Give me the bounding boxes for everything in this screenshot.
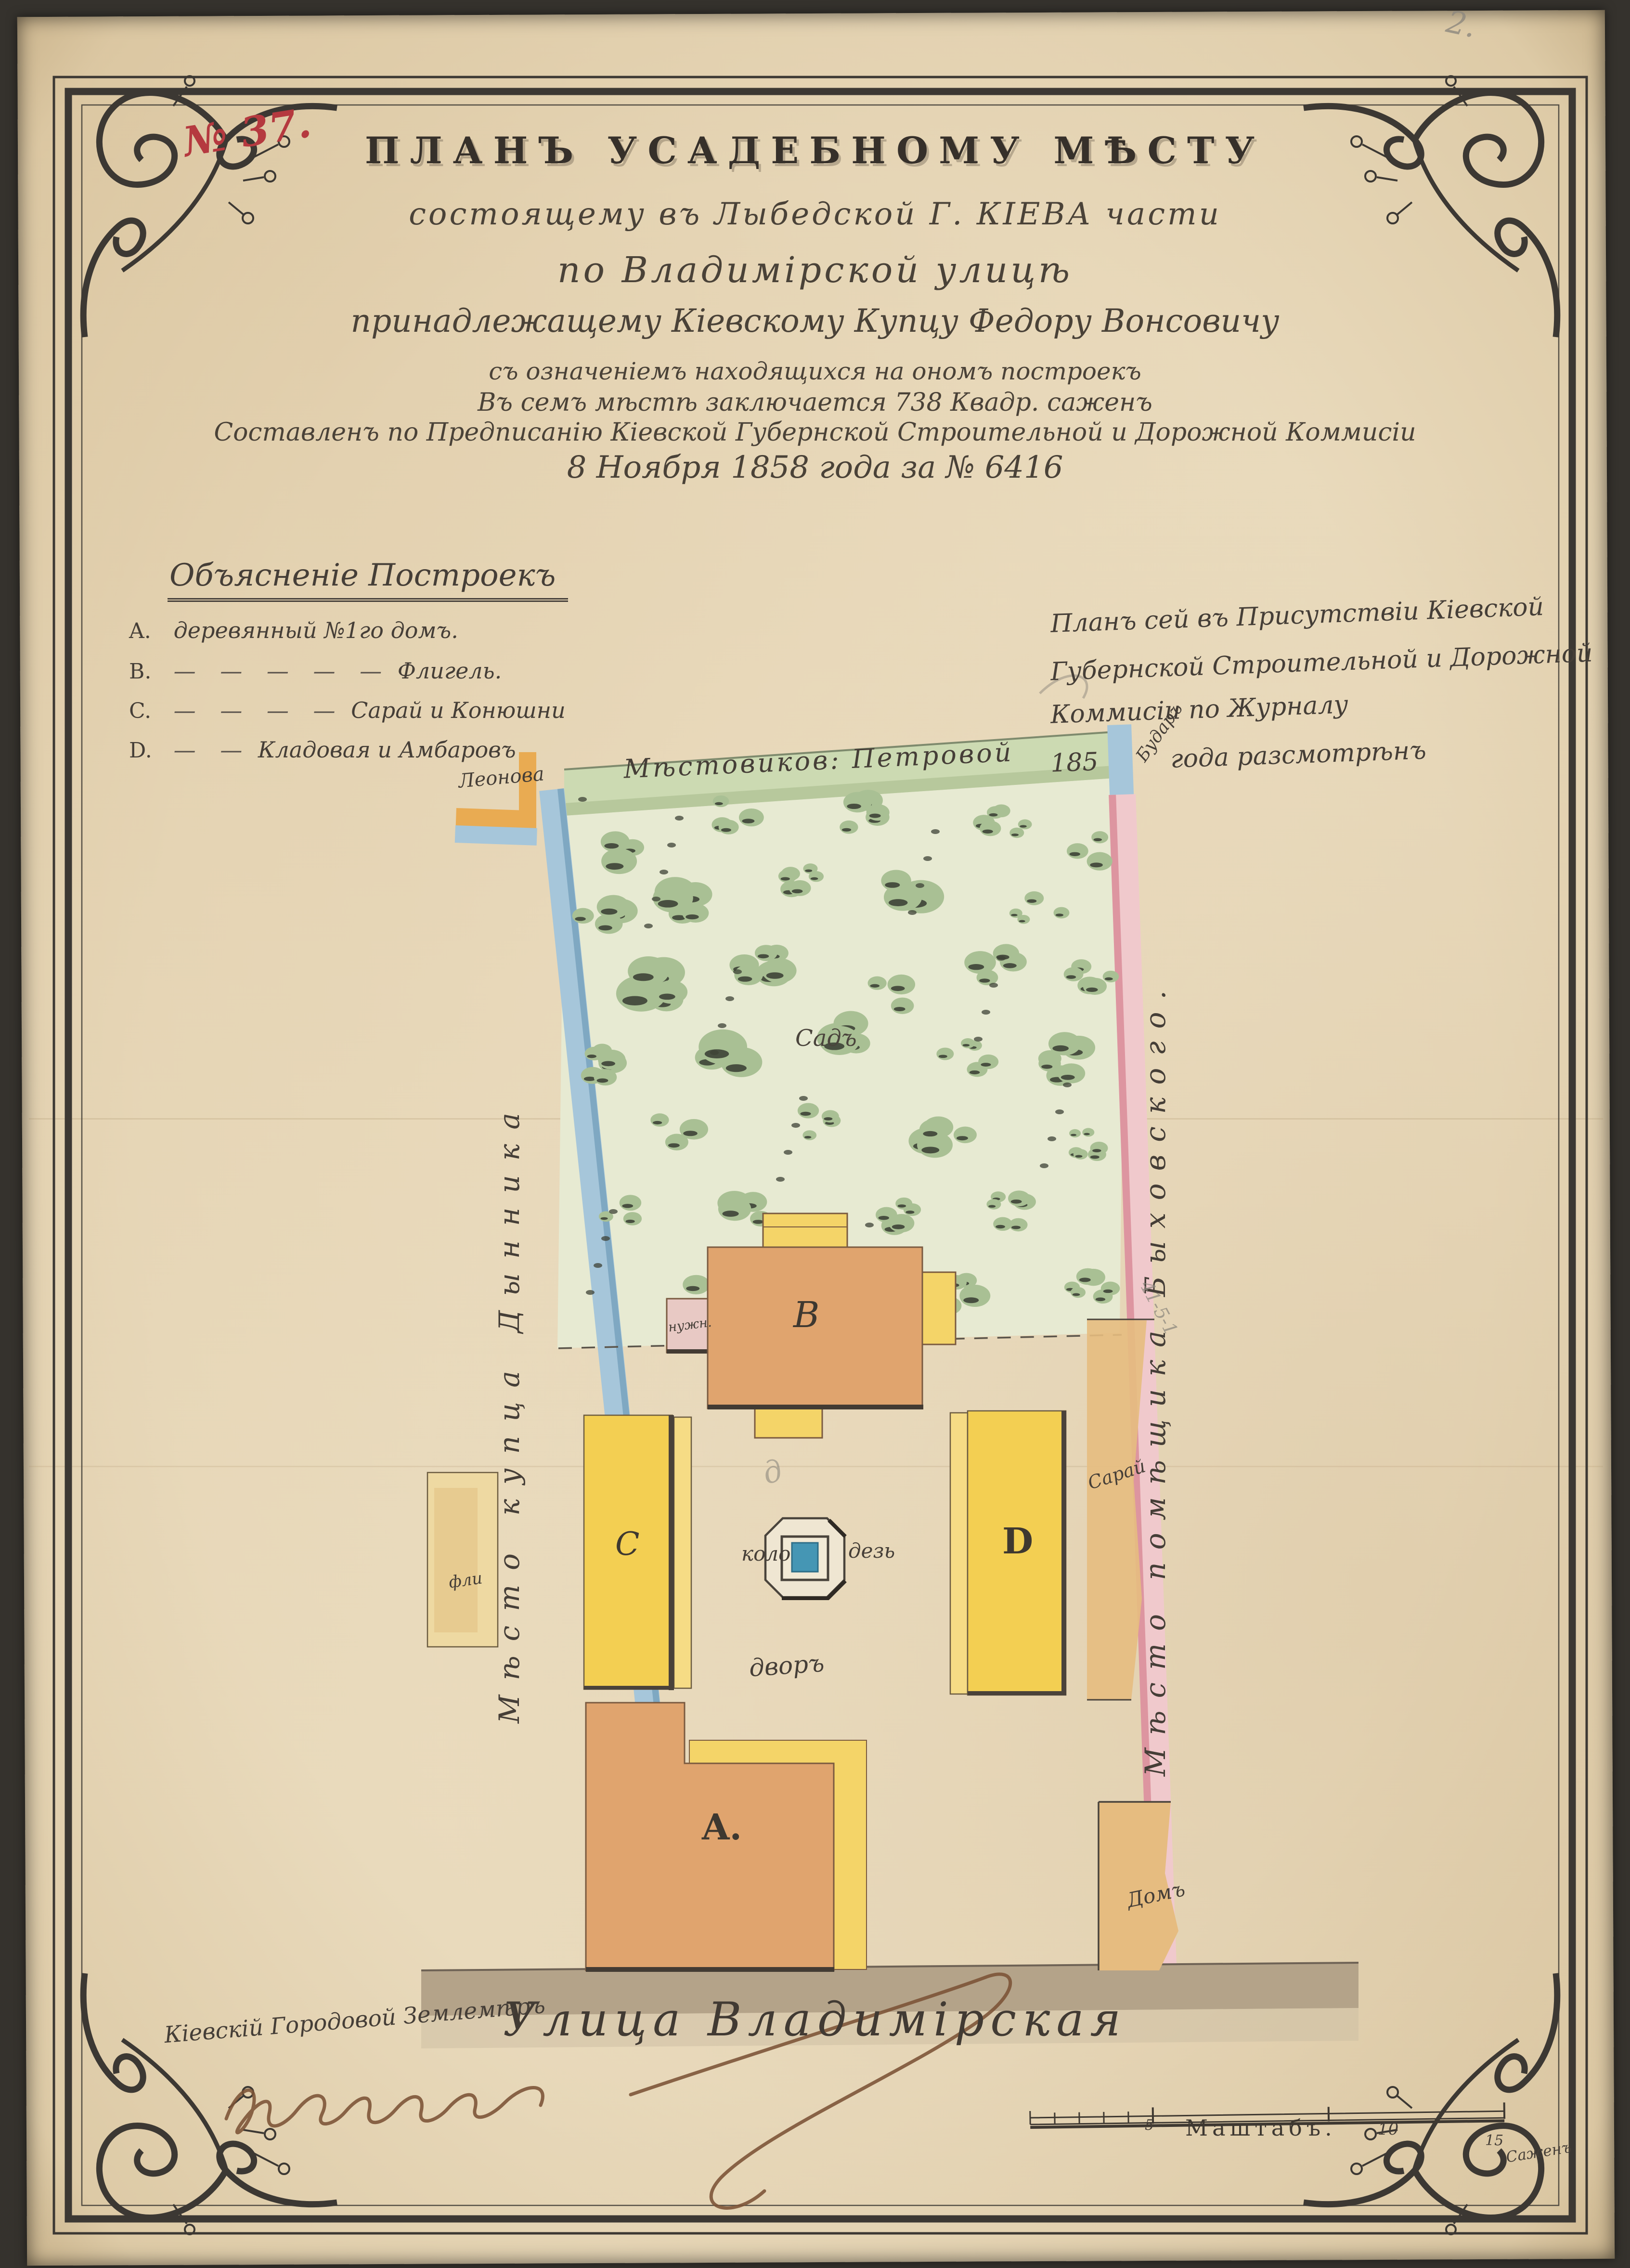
legend-dashes: — — — — — [174, 697, 344, 723]
legend-key: C. — [129, 699, 167, 723]
legend-row: C. — — — — Сарай и Конюшни — [129, 697, 566, 723]
building-label-c: C — [615, 1525, 640, 1563]
subtitle-line: принадлежащему Кіевскому Купцу Федору Во… — [350, 302, 1279, 339]
subtitle-line: Въ семъ мѣстѣ заключается 738 Квадр. саж… — [478, 388, 1152, 417]
east-boundary-label: Мѣсто помѣщика Быховского. — [1139, 978, 1172, 1776]
scale-tick-5: 5 — [1145, 2117, 1154, 2134]
plan-title: ПЛАНЪ УСАДЕБНОМУ МѢСТУ — [365, 129, 1265, 172]
building-label-b: B — [793, 1294, 819, 1336]
west-boundary-label: Мѣсто купца Дынника — [493, 1098, 526, 1723]
legend-label: деревянный №1го домъ. — [174, 617, 458, 643]
building-label-d: D — [1002, 1521, 1033, 1562]
legend-label: Сарай и Конюшни — [351, 697, 566, 723]
subtitle-line: съ означеніемъ находящихся на ономъ пост… — [489, 357, 1141, 385]
scanned-plan-page: № 37. 2. ПЛАНЪ УСАДЕБНОМУ МѢСТУ состояще… — [0, 0, 1630, 2268]
building-label-a: A. — [702, 1807, 742, 1848]
legend-row: A. деревянный №1го домъ. — [129, 617, 458, 643]
legend-row: B. — — — — — Флигель. — [129, 658, 502, 684]
well-label-right: дезь — [848, 1539, 895, 1563]
corner-flourish-top-right — [1304, 76, 1557, 337]
legend-dashes: — — — — — — [174, 658, 391, 684]
subtitle-line: по Владимірской улицѣ — [557, 249, 1073, 291]
legend-key: D. — [129, 738, 167, 763]
legend-key: A. — [129, 619, 167, 643]
street-label: Улица Владимірская — [503, 1993, 1127, 2046]
scale-tick-15: 15 — [1485, 2132, 1503, 2149]
well-label-left: коло — [741, 1542, 790, 1565]
subtitle-line: 8 Ноября 1858 года за № 6416 — [567, 450, 1063, 485]
legend-heading: Объясненіе Построекъ — [168, 558, 568, 602]
scale-tick-10: 10 — [1378, 2120, 1398, 2139]
legend-row: D. — — Кладовая и Амбаровъ — [129, 737, 516, 763]
legend-key: B. — [129, 659, 167, 684]
scale-title: Маштабъ. — [1185, 2115, 1336, 2141]
yard-label: дворъ — [748, 1649, 825, 1682]
garden-label: Садъ — [795, 1025, 857, 1052]
legend-label: Кладовая и Амбаровъ — [258, 737, 516, 763]
legend-label: Флигель. — [398, 658, 502, 684]
plan-drawing — [0, 0, 1630, 2268]
outside-west-building — [427, 1473, 498, 1647]
legend-dashes: — — — [174, 737, 251, 763]
subtitle-line: состоящему въ Лыбедской Г. КІЕВА части — [409, 196, 1221, 232]
approval-year-prefix: 185 — [1050, 747, 1099, 778]
subtitle-line: Составленъ по Предписанію Кіевской Губер… — [214, 418, 1416, 447]
